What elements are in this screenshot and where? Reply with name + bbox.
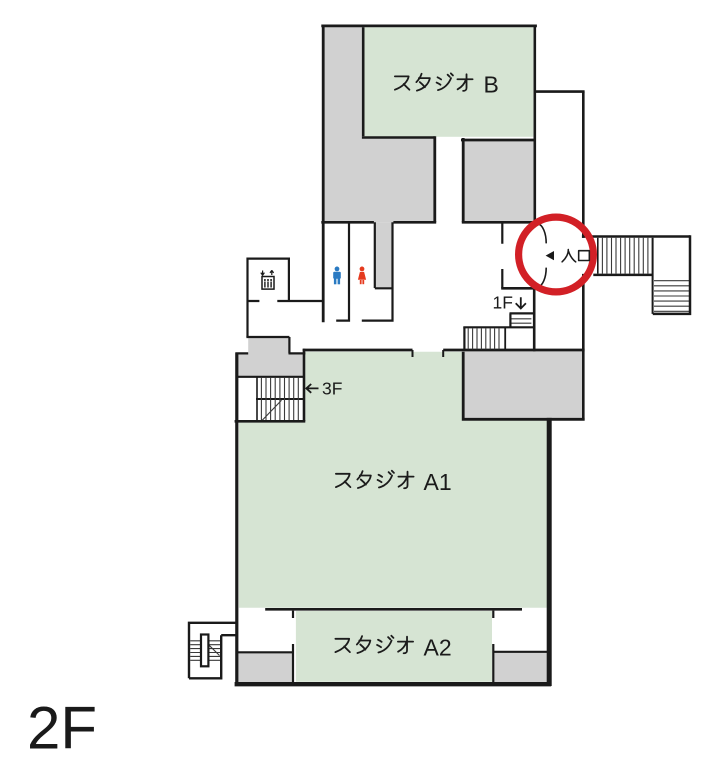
svg-text:3F: 3F: [322, 378, 342, 398]
svg-text:2F: 2F: [27, 695, 97, 762]
svg-text:A1: A1: [424, 469, 452, 495]
svg-text:A2: A2: [424, 634, 452, 660]
svg-text:B: B: [484, 72, 499, 98]
svg-text:1F: 1F: [493, 293, 513, 313]
